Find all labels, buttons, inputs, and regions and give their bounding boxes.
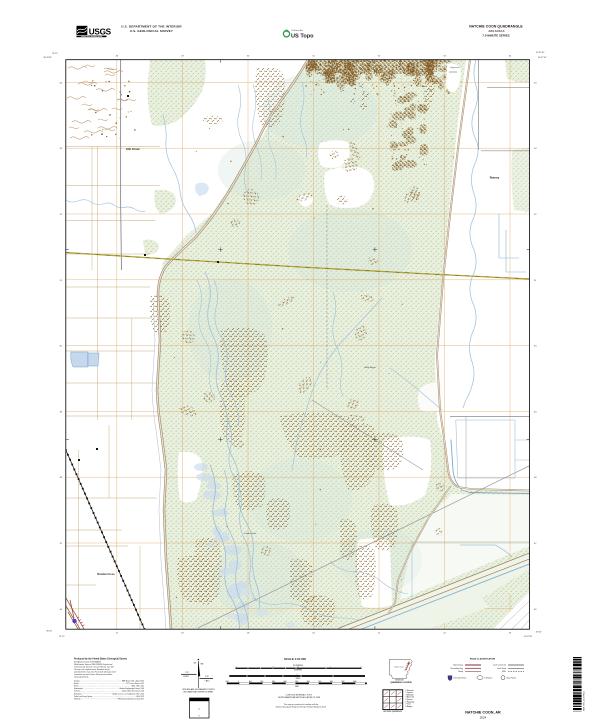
svg-text:NATCHIE COON QUADRANGLE: NATCHIE COON QUADRANGLE: [469, 24, 523, 28]
svg-text:Roads: Roads: [74, 683, 79, 685]
svg-text:U.S. DEPARTMENT OF THE INTERIO: U.S. DEPARTMENT OF THE INTERIOR: [121, 25, 182, 29]
svg-text:US Route: US Route: [485, 677, 493, 680]
svg-text:U.S. GEOLOGICAL SURVEY: U.S. GEOLOGICAL SURVEY: [130, 29, 173, 33]
svg-text:.5: .5: [272, 667, 273, 669]
svg-text:33 MILS: 33 MILS: [183, 676, 189, 678]
svg-text:5 Tyronza: 5 Tyronza: [406, 699, 413, 701]
svg-text:4WD: 4WD: [502, 671, 507, 673]
svg-text:GNIS, 1980 - 2021: GNIS, 1980 - 2021: [131, 686, 144, 688]
svg-text:Ramp: Ramp: [458, 671, 463, 673]
svg-text:FEET: FEET: [295, 686, 299, 688]
svg-text:Webb Bayou: Webb Bayou: [364, 367, 376, 369]
svg-text:USGS: USGS: [89, 27, 112, 36]
svg-text:National Geospatial Program US: National Geospatial Program US Topo Prod…: [276, 706, 327, 709]
svg-text:QUADRANGLE LOCATION: QUADRANGLE LOCATION: [390, 681, 412, 684]
svg-text:BLM, 2022: BLM, 2022: [137, 696, 144, 698]
svg-text:36°30': 36°30': [46, 631, 52, 633]
svg-text:15: 15: [198, 709, 200, 711]
svg-text:91°07'30": 91°07'30": [536, 52, 545, 54]
svg-text:36°30': 36°30': [536, 632, 542, 634]
svg-text:8000: 8000: [330, 681, 333, 683]
svg-text:SCALE 1:24 000: SCALE 1:24 000: [284, 657, 306, 661]
svg-text:NATCHIE COON, AR: NATCHIE COON, AR: [465, 711, 501, 715]
svg-text:ARKANSAS: ARKANSAS: [488, 29, 504, 33]
svg-text:Ramsey: Ramsey: [490, 177, 500, 180]
svg-text:9000: 9000: [342, 681, 345, 683]
svg-text:1000: 1000: [226, 681, 229, 683]
svg-text:4000: 4000: [284, 681, 287, 683]
svg-text:7000: 7000: [318, 681, 321, 683]
svg-text:91°15': 91°15': [59, 636, 65, 638]
svg-text:2024: 2024: [480, 716, 487, 720]
svg-text:6 Payneway: 6 Payneway: [406, 701, 415, 703]
svg-text:3000: 3000: [272, 681, 275, 683]
svg-text:State Route: State Route: [507, 677, 517, 680]
svg-text:36°37'30": 36°37'30": [43, 57, 52, 59]
svg-text:5000: 5000: [295, 681, 298, 683]
svg-text:NORTH AMERICAN VERTICAL DATUM: NORTH AMERICAN VERTICAL DATUM OF 1988: [278, 696, 320, 699]
svg-text:91°07'30": 91°07'30": [524, 636, 533, 638]
svg-text:1 Rivervale: 1 Rivervale: [406, 690, 414, 692]
svg-text:1000: 1000: [249, 681, 252, 683]
svg-text:4 Black Oak: 4 Black Oak: [406, 697, 415, 699]
svg-text:Interstate Route: Interstate Route: [454, 677, 467, 680]
svg-text:Elm Grove: Elm Grove: [126, 147, 140, 151]
svg-text:Hargreaves: Hargreaves: [450, 67, 459, 69]
svg-text:Rondon Cross: Rondon Cross: [97, 573, 115, 576]
svg-text:Produced by the United States: Produced by the United States Geological…: [74, 658, 128, 661]
svg-text:2000: 2000: [260, 681, 263, 683]
svg-text:7.5-MINUTE SERIES: 7.5-MINUTE SERIES: [482, 33, 509, 37]
svg-text:5 MILS: 5 MILS: [205, 680, 210, 682]
svg-text:10000: 10000: [353, 681, 357, 683]
svg-text:Expressway: Expressway: [453, 665, 463, 667]
svg-text:91°15': 91°15': [52, 53, 58, 55]
svg-text:ISBN 978-1-24-567890-1: ISBN 978-1-24-567890-1: [584, 691, 586, 711]
svg-text:500 METERS: 500 METERS: [294, 670, 302, 672]
svg-text:6000: 6000: [307, 681, 310, 683]
svg-text:MILES: MILES: [296, 678, 301, 680]
svg-text:DECLINATION AT CENTER OF SHEET: DECLINATION AT CENTER OF SHEET: [183, 690, 213, 693]
svg-text:Crooked Lake: Crooked Lake: [244, 533, 257, 535]
svg-text:Secondary Hwy: Secondary Hwy: [450, 668, 463, 670]
svg-text:US Topo: US Topo: [291, 34, 314, 40]
svg-text:36°37'30": 36°37'30": [538, 57, 547, 59]
svg-text:Names: Names: [74, 686, 79, 688]
svg-text:ROAD CLASSIFICATION: ROAD CLASSIFICATION: [470, 658, 496, 661]
svg-text:8 Birdeye: 8 Birdeye: [406, 706, 413, 708]
svg-text:Local Road: Local Road: [497, 668, 506, 670]
svg-text:Local Connector: Local Connector: [493, 664, 506, 667]
